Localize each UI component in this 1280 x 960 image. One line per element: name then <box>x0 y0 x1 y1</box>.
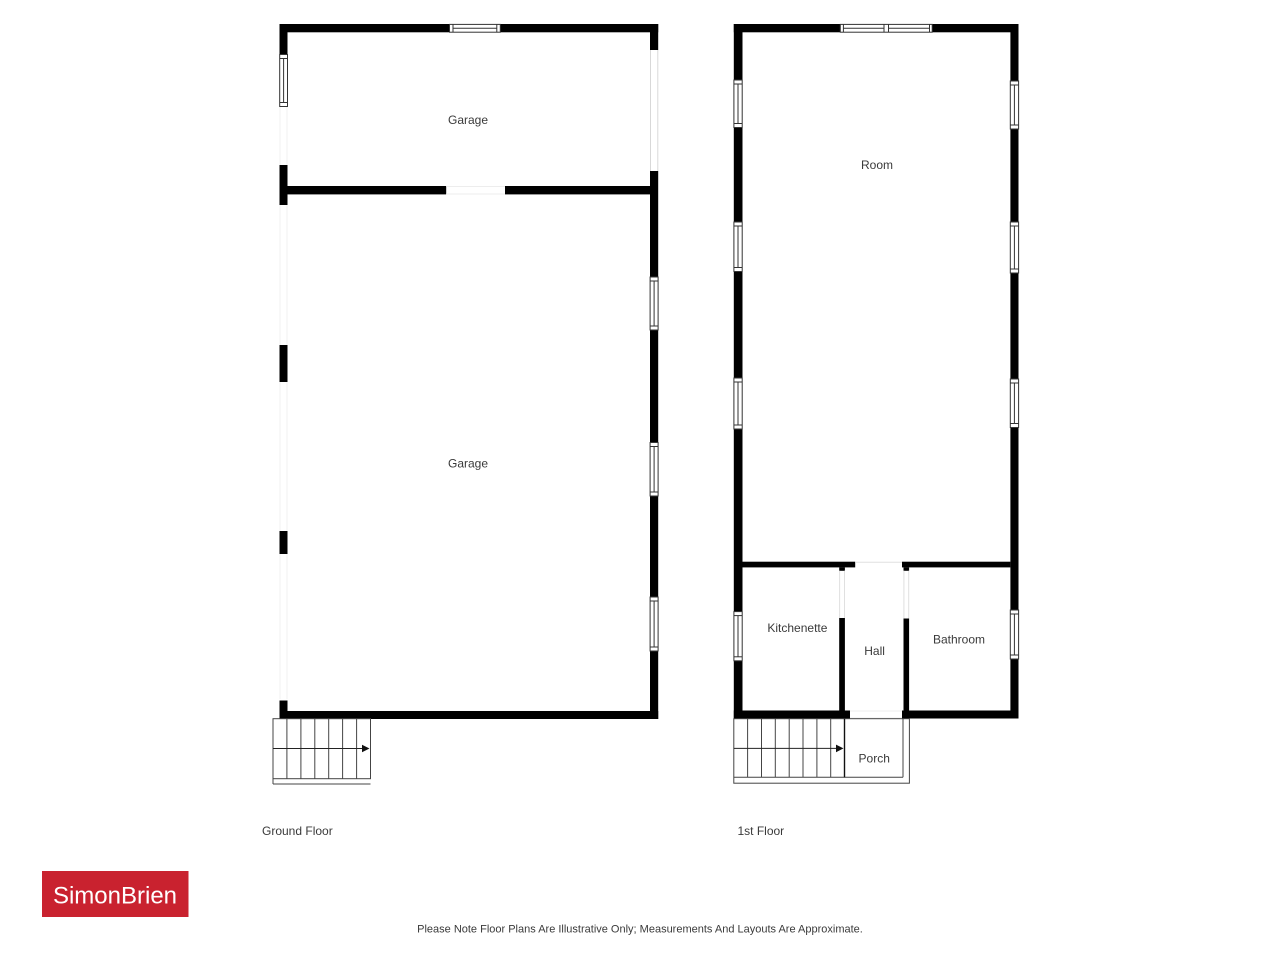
svg-text:Bathroom: Bathroom <box>933 633 985 647</box>
svg-text:Kitchenette: Kitchenette <box>767 621 827 635</box>
svg-text:Please Note Floor Plans Are Il: Please Note Floor Plans Are Illustrative… <box>417 924 863 936</box>
svg-text:Ground Floor: Ground Floor <box>262 824 333 838</box>
svg-text:Garage: Garage <box>448 113 488 127</box>
svg-text:Hall: Hall <box>864 644 885 658</box>
svg-text:Garage: Garage <box>448 457 488 471</box>
svg-text:1st Floor: 1st Floor <box>738 824 785 838</box>
svg-text:SimonBrien: SimonBrien <box>53 883 177 910</box>
svg-text:Room: Room <box>861 158 893 172</box>
svg-text:Porch: Porch <box>859 752 890 766</box>
